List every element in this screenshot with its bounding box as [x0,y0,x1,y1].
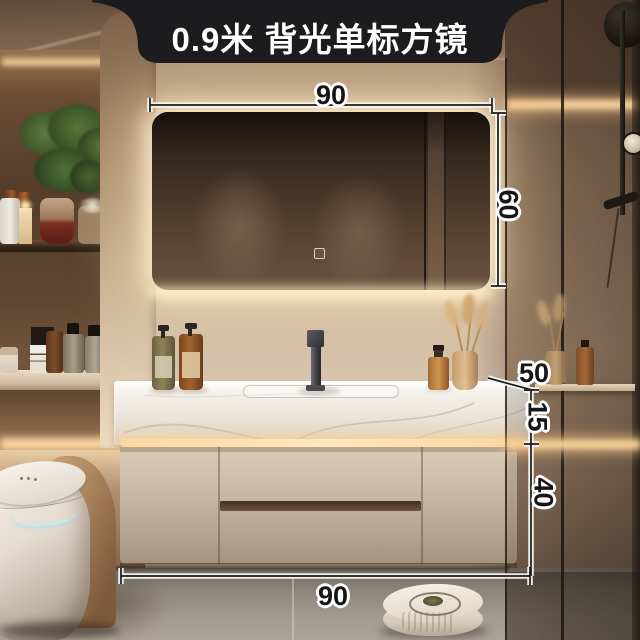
pampas-vase [452,351,478,390]
dim-vanity-width: 90 [313,581,353,612]
cabinet-door-seam [421,447,423,564]
faucet-base [306,385,325,391]
glass-floor-shade [505,572,640,640]
mirror-light-reflection [192,167,287,287]
wall-floor-junction [100,566,510,570]
product-photo-scene: 90 60 50 15 40 90 0.9米 背光单标方镜 [0,0,640,640]
dim-counter-height: 15 [522,397,553,437]
faucet-spout [307,330,324,347]
gray-bottle [63,334,84,373]
robot-vacuum-button [423,596,443,606]
shower-mixer-dial [622,132,640,155]
amber-soap-pump-head [185,323,197,329]
toilet-buttons [20,477,23,480]
banner-title-text: 0.9米 背光单标方镜 [0,13,640,61]
toilet-base-shadow [0,622,120,638]
faucet-body [311,347,321,387]
mirror-touch-sensor-icon [314,248,325,259]
olive-soap-pump-head [158,325,169,331]
perfume-bottle [428,357,449,390]
glass-right-edge [632,0,640,640]
dim-mirror-height: 60 [493,185,524,225]
olive-soap-pump [161,330,165,338]
candle [19,208,32,244]
candle-flame-glow [20,201,31,210]
under-counter-led-strip [120,439,517,447]
robot-vacuum-grille [402,611,455,633]
cabinet-top-shade [120,447,517,452]
floor-tile-seam [292,576,294,640]
mirror-bottom-glow [150,287,490,297]
dim-counter-depth: 50 [514,358,554,389]
glass-vase-red-liquid [40,198,74,244]
shower-amber-bottle [576,347,594,385]
backlit-mirror [152,112,490,290]
drawer-handle-groove [220,501,421,511]
olive-soap-label [155,356,172,378]
cream-jar [0,347,18,373]
amber-soap-pump [188,328,192,336]
dim-cabinet-height: 40 [528,473,559,513]
mirror-light-reflection [312,172,407,290]
shower-led-strip-lower [507,440,640,449]
amber-soap-label [182,352,200,378]
mirror-top-shade [152,112,490,154]
dim-mirror-width: 90 [311,80,351,111]
white-pump-bottle [0,198,20,244]
brown-bottle [46,331,63,373]
vanity-cabinet [120,447,517,564]
glass-frame-line [505,58,507,640]
